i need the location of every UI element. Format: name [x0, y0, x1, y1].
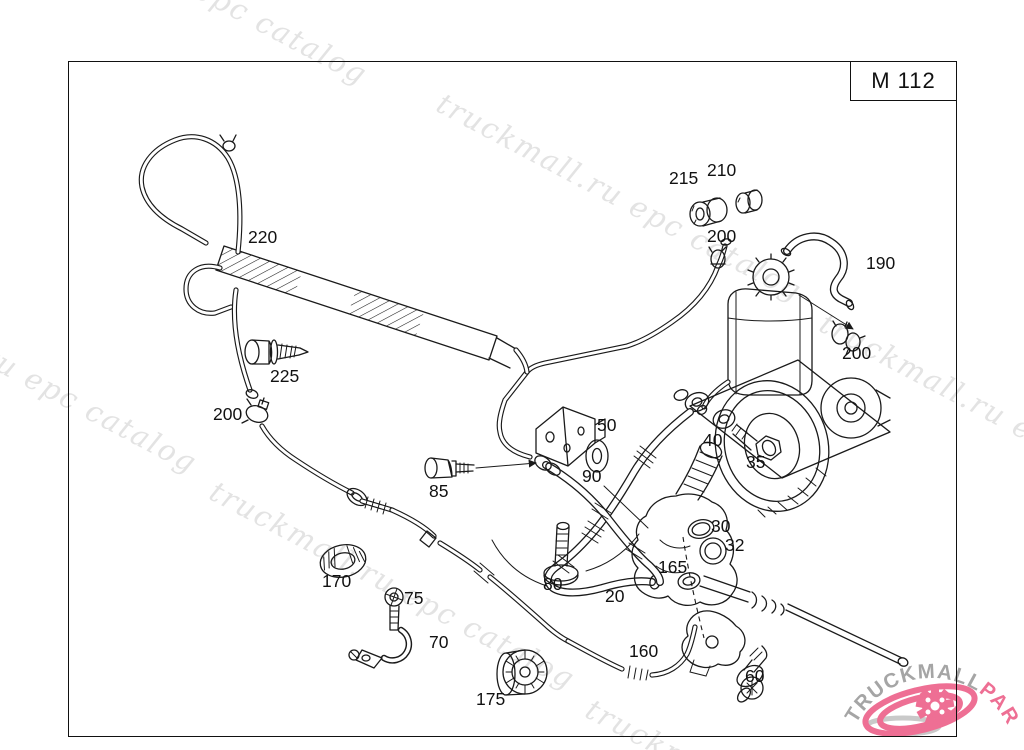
part-label-85[interactable]: 85	[429, 483, 448, 501]
catalog-page: epc catalogtruckmall.ru epc catalogtruck…	[0, 0, 1024, 750]
part-label-210[interactable]: 210	[707, 162, 736, 180]
part-label-75[interactable]: 75	[404, 590, 423, 608]
part-label-160[interactable]: 160	[629, 643, 658, 661]
part-label-190[interactable]: 190	[866, 255, 895, 273]
part-label-20[interactable]: 20	[605, 588, 624, 606]
part-label-70[interactable]: 70	[429, 634, 448, 652]
part-label-165[interactable]: 165	[658, 559, 687, 577]
part-label-175[interactable]: 175	[476, 691, 505, 709]
part-label-30[interactable]: 30	[711, 518, 730, 536]
part-label-215[interactable]: 215	[669, 170, 698, 188]
part-label-50[interactable]: 50	[597, 417, 616, 435]
part-label-60[interactable]: 60	[745, 668, 764, 686]
part-label-32[interactable]: 32	[725, 537, 744, 555]
part-label-200-2[interactable]: 200	[707, 228, 736, 246]
part-label-40[interactable]: 40	[703, 432, 722, 450]
part-label-170[interactable]: 170	[322, 573, 351, 591]
part-label-35[interactable]: 35	[746, 454, 765, 472]
part-label-layer: 2202252002152102001902005090403585802030…	[0, 0, 1024, 750]
part-label-80[interactable]: 80	[543, 576, 562, 594]
part-label-225[interactable]: 225	[270, 368, 299, 386]
part-label-220[interactable]: 220	[248, 229, 277, 247]
part-label-200-1[interactable]: 200	[213, 406, 242, 424]
part-label-90[interactable]: 90	[582, 468, 601, 486]
part-label-200-3[interactable]: 200	[842, 345, 871, 363]
